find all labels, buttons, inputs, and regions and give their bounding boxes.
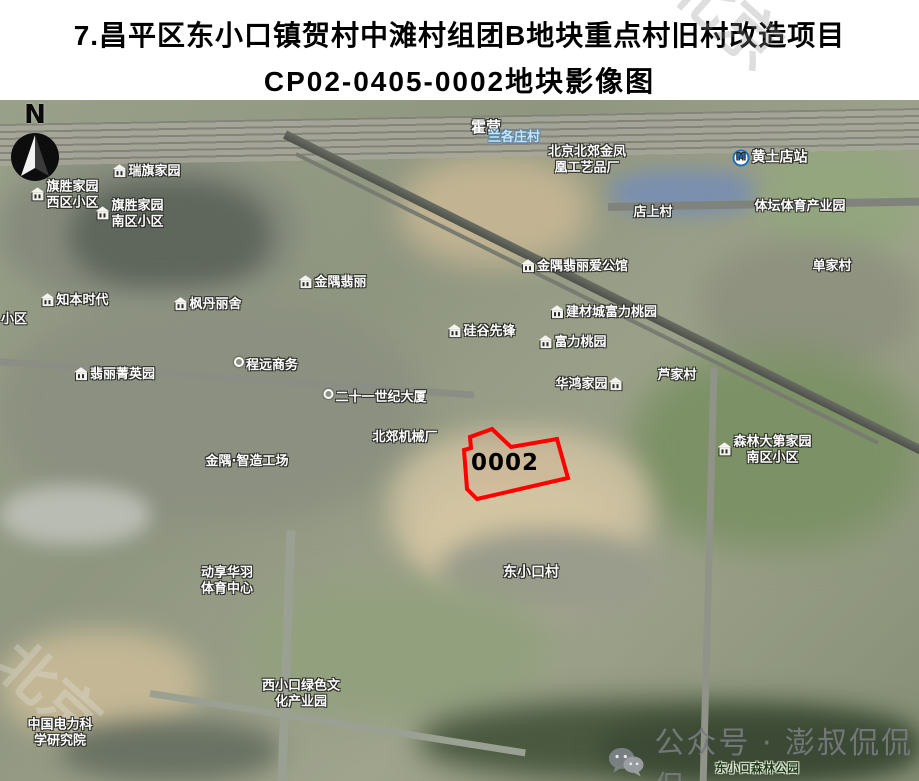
map-label-text: 富力桃园 [554, 335, 606, 351]
building-icon [551, 310, 564, 320]
map-label-text: 兰各庄村 [488, 130, 540, 146]
map-label-text: 枫丹丽舍 [189, 297, 241, 313]
map-label: 黄土店站 [733, 150, 808, 167]
map-label-text: 动享华羽体育中心 [201, 565, 253, 596]
map-label: 旗胜家园南区小区 [96, 198, 163, 229]
map-label-text: 金隅·智造工场 [206, 454, 289, 470]
map-label: 芦家村 [657, 368, 696, 384]
title-block: 北京 7.昌平区东小口镇贺村中滩村组团B地块重点村旧村改造项目 CP02-040… [0, 0, 919, 100]
map-label-text: 森林大第家园南区小区 [733, 434, 811, 465]
map-label-text: 体坛体育产业园 [754, 199, 845, 215]
map-label-text: 北京北郊金凤凰工艺品厂 [548, 144, 626, 175]
map-label-text: 北郊机械厂 [372, 430, 437, 446]
satellite-map[interactable]: 0002 N 霍营黄土店站瑞旗家园旗胜家园西区小区旗胜家园南区小区兰各庄村北京北… [0, 100, 919, 781]
map-label: 金隅翡丽 [299, 275, 366, 291]
compass-icon [8, 128, 62, 186]
building-icon [718, 447, 731, 457]
map-label: 小区 [1, 312, 27, 328]
map-label-text: 二十一世纪大厦 [335, 390, 426, 406]
wechat-icon [608, 745, 644, 779]
map-label-text: 西小口绿色文化产业园 [262, 678, 340, 709]
building-icon [31, 192, 44, 202]
building-icon [113, 169, 126, 179]
map-label-text: 瑞旗家园 [128, 164, 180, 180]
map-label-text: 旗胜家园南区小区 [111, 198, 163, 229]
map-label: 动享华羽体育中心 [201, 565, 253, 596]
wechat-watermark: 公众号 · 澎叔侃侃侃 [608, 718, 919, 781]
north-letter: N [8, 102, 62, 128]
map-label-text: 芦家村 [657, 368, 696, 384]
map-label: 程远商务 [234, 357, 298, 375]
building-icon [41, 298, 54, 308]
map-label: 单家村 [812, 259, 851, 275]
map-label-text: 华鸿家园 [555, 377, 607, 393]
map-label-text: 小区 [1, 312, 27, 328]
map-label: 中国电力科学研究院 [27, 717, 92, 748]
building-icon [522, 264, 535, 274]
map-label: 兰各庄村 [488, 130, 540, 146]
map-label: 森林大第家园南区小区 [718, 434, 811, 465]
building-icon [610, 382, 623, 392]
north-arrow: N [8, 102, 62, 190]
building-icon [448, 329, 461, 339]
map-label-text: 硅谷先锋 [463, 324, 515, 340]
map-label-text: 翡丽菁英园 [90, 367, 155, 383]
metro-icon [733, 150, 750, 167]
map-label: 华鸿家园 [555, 377, 622, 393]
map-label: 店上村 [633, 205, 672, 221]
map-label: 金隅翡丽爱公馆 [522, 259, 628, 275]
dot-icon [234, 357, 244, 367]
map-labels-layer: 霍营黄土店站瑞旗家园旗胜家园西区小区旗胜家园南区小区兰各庄村北京北郊金凤凰工艺品… [0, 100, 919, 781]
parcel-id-label: 0002 [471, 450, 539, 476]
map-label: 枫丹丽舍 [174, 297, 241, 313]
map-label-text: 东小口村 [503, 565, 559, 582]
map-label: 北郊机械厂 [372, 430, 437, 446]
wechat-watermark-text: 公众号 · 澎叔侃侃侃 [654, 718, 919, 781]
map-label: 富力桃园 [539, 335, 606, 351]
map-label: 翡丽菁英园 [75, 367, 155, 383]
map-label: 二十一世纪大厦 [323, 389, 426, 407]
building-icon [174, 302, 187, 312]
map-label: 硅谷先锋 [448, 324, 515, 340]
map-label-text: 程远商务 [246, 358, 298, 374]
map-label-text: 知本时代 [56, 293, 108, 309]
building-icon [75, 372, 88, 382]
map-label: 瑞旗家园 [113, 164, 180, 180]
building-icon [539, 340, 552, 350]
map-label-text: 店上村 [633, 205, 672, 221]
page-title-line1: 7.昌平区东小口镇贺村中滩村组团B地块重点村旧村改造项目 [0, 0, 919, 54]
page-title-line2: CP02-0405-0002地块影像图 [0, 54, 919, 100]
map-label: 金隅·智造工场 [206, 454, 289, 470]
map-label-text: 中国电力科学研究院 [27, 717, 92, 748]
map-label: 体坛体育产业园 [754, 199, 845, 215]
map-label: 西小口绿色文化产业园 [262, 678, 340, 709]
dot-icon [323, 389, 333, 399]
map-label-text: 金隅翡丽 [314, 275, 366, 291]
page: 北京 7.昌平区东小口镇贺村中滩村组团B地块重点村旧村改造项目 CP02-040… [0, 0, 919, 781]
building-icon [96, 211, 109, 221]
map-label-text: 黄土店站 [752, 150, 808, 167]
map-label: 建材城富力桃园 [551, 305, 657, 321]
map-label-text: 建材城富力桃园 [566, 305, 657, 321]
map-label: 北京北郊金凤凰工艺品厂 [548, 144, 626, 175]
map-label-text: 金隅翡丽爱公馆 [537, 259, 628, 275]
building-icon [299, 280, 312, 290]
map-label: 东小口村 [503, 565, 559, 582]
map-label: 知本时代 [41, 293, 108, 309]
map-label-text: 单家村 [812, 259, 851, 275]
